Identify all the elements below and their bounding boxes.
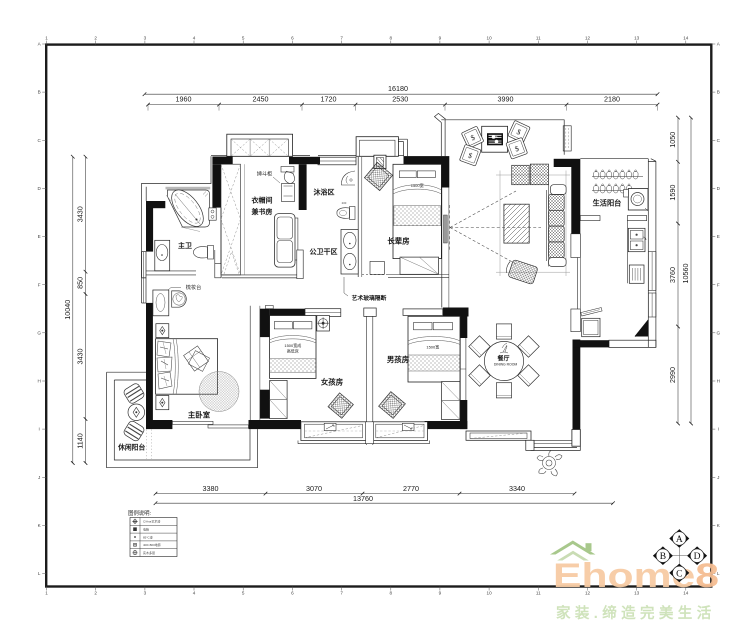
- svg-text:E: E: [38, 234, 41, 239]
- svg-text:B: B: [38, 90, 41, 95]
- svg-text:11: 11: [536, 591, 541, 596]
- svg-text:婶斗柜: 婶斗柜: [257, 170, 273, 178]
- svg-text:9: 9: [439, 36, 442, 41]
- svg-text:1720: 1720: [321, 95, 337, 104]
- svg-text:1500宽成: 1500宽成: [284, 342, 301, 348]
- svg-text:生活阳台: 生活阳台: [593, 199, 622, 208]
- svg-text:400×800地砖: 400×800地砖: [143, 542, 161, 547]
- svg-text:DINING ROOM: DINING ROOM: [494, 362, 518, 366]
- svg-text:L: L: [38, 571, 41, 576]
- svg-text:B: B: [717, 90, 720, 95]
- svg-text:8: 8: [390, 36, 393, 41]
- svg-text:I: I: [39, 427, 40, 432]
- svg-text:J: J: [38, 475, 40, 480]
- svg-text:1590: 1590: [668, 185, 677, 201]
- svg-text:11: 11: [536, 36, 541, 41]
- svg-text:5: 5: [242, 591, 245, 596]
- svg-text:8: 8: [390, 591, 393, 596]
- svg-text:Ehome8: Ehome8: [553, 557, 719, 595]
- svg-text:10040: 10040: [63, 300, 72, 320]
- svg-text:10: 10: [487, 36, 493, 41]
- svg-text:I: I: [718, 427, 719, 432]
- svg-text:6: 6: [291, 591, 294, 596]
- svg-text:公卫干区: 公卫干区: [310, 248, 338, 256]
- svg-text:电箱: 电箱: [143, 527, 149, 532]
- svg-text:13: 13: [634, 36, 640, 41]
- svg-text:7: 7: [340, 36, 343, 41]
- svg-text:A: A: [676, 535, 683, 545]
- svg-text:200: 200: [342, 201, 347, 205]
- svg-text:主卧室: 主卧室: [188, 411, 211, 420]
- svg-text:85°C漆: 85°C漆: [143, 534, 153, 539]
- svg-text:2770: 2770: [403, 484, 419, 493]
- svg-text:C: C: [676, 569, 682, 579]
- svg-text:1: 1: [45, 591, 48, 596]
- svg-text:沐浴区: 沐浴区: [314, 188, 335, 197]
- svg-text:1: 1: [45, 36, 48, 41]
- svg-text:4: 4: [193, 591, 196, 596]
- svg-text:10560: 10560: [681, 264, 690, 284]
- svg-text:G: G: [37, 330, 41, 335]
- svg-text:休闲阳台: 休闲阳台: [117, 443, 145, 452]
- svg-text:1960: 1960: [176, 95, 192, 104]
- svg-text:2180: 2180: [604, 95, 620, 104]
- svg-text:3990: 3990: [498, 95, 514, 104]
- svg-text:850: 850: [76, 277, 85, 289]
- svg-text:梳妆台: 梳妆台: [186, 283, 202, 291]
- svg-text:2: 2: [94, 36, 97, 41]
- svg-text:2450: 2450: [253, 95, 269, 104]
- svg-text:F: F: [717, 282, 720, 287]
- svg-text:J: J: [717, 475, 719, 480]
- svg-text:兼书房: 兼书房: [252, 207, 273, 216]
- svg-text:C/Ana艺术漆: C/Ana艺术漆: [143, 519, 160, 524]
- svg-text:F: F: [38, 282, 41, 287]
- svg-text:主卫: 主卫: [178, 241, 192, 250]
- svg-text:2: 2: [94, 591, 97, 596]
- svg-text:G: G: [717, 330, 721, 335]
- svg-text:3: 3: [144, 36, 147, 41]
- svg-text:1050: 1050: [668, 132, 677, 148]
- svg-text:2990: 2990: [668, 367, 677, 383]
- svg-text:H: H: [717, 379, 720, 384]
- svg-text:B: B: [660, 552, 666, 562]
- svg-text:3430: 3430: [76, 206, 85, 222]
- svg-text:3430: 3430: [76, 349, 85, 365]
- svg-text:2530: 2530: [392, 95, 408, 104]
- svg-text:男孩房: 男孩房: [387, 355, 409, 364]
- svg-text:1140: 1140: [76, 433, 85, 448]
- svg-text:3380: 3380: [203, 484, 219, 493]
- svg-text:女孩房: 女孩房: [321, 377, 343, 386]
- svg-text:高低床: 高低床: [287, 348, 299, 354]
- svg-text:家装.缔造完美生活: 家装.缔造完美生活: [556, 604, 717, 622]
- svg-text:5: 5: [242, 36, 245, 41]
- svg-text:4: 4: [193, 36, 196, 41]
- svg-text:1500宽: 1500宽: [411, 182, 424, 188]
- svg-text:3760: 3760: [668, 267, 677, 283]
- svg-text:实木多层: 实木多层: [143, 550, 155, 555]
- svg-text:13760: 13760: [353, 494, 373, 503]
- svg-text:10: 10: [487, 591, 493, 596]
- svg-text:12: 12: [585, 36, 591, 41]
- svg-text:图例说明:: 图例说明:: [128, 509, 151, 517]
- svg-text:3340: 3340: [509, 484, 525, 493]
- svg-text:1500宽: 1500宽: [426, 344, 439, 350]
- svg-text:16180: 16180: [388, 84, 408, 93]
- svg-text:14: 14: [683, 36, 689, 41]
- svg-text:E: E: [717, 234, 720, 239]
- svg-text:衣帽间: 衣帽间: [252, 196, 273, 205]
- svg-text:D: D: [694, 552, 701, 562]
- svg-text:餐厅: 餐厅: [496, 354, 509, 362]
- svg-text:艺术玻璃隔断: 艺术玻璃隔断: [352, 294, 387, 302]
- svg-text:长辈房: 长辈房: [387, 237, 409, 246]
- svg-text:6: 6: [291, 36, 294, 41]
- svg-text:3070: 3070: [306, 484, 322, 493]
- svg-text:7: 7: [340, 591, 343, 596]
- svg-text:9: 9: [439, 591, 442, 596]
- svg-text:H: H: [38, 379, 41, 384]
- svg-text:3: 3: [144, 591, 147, 596]
